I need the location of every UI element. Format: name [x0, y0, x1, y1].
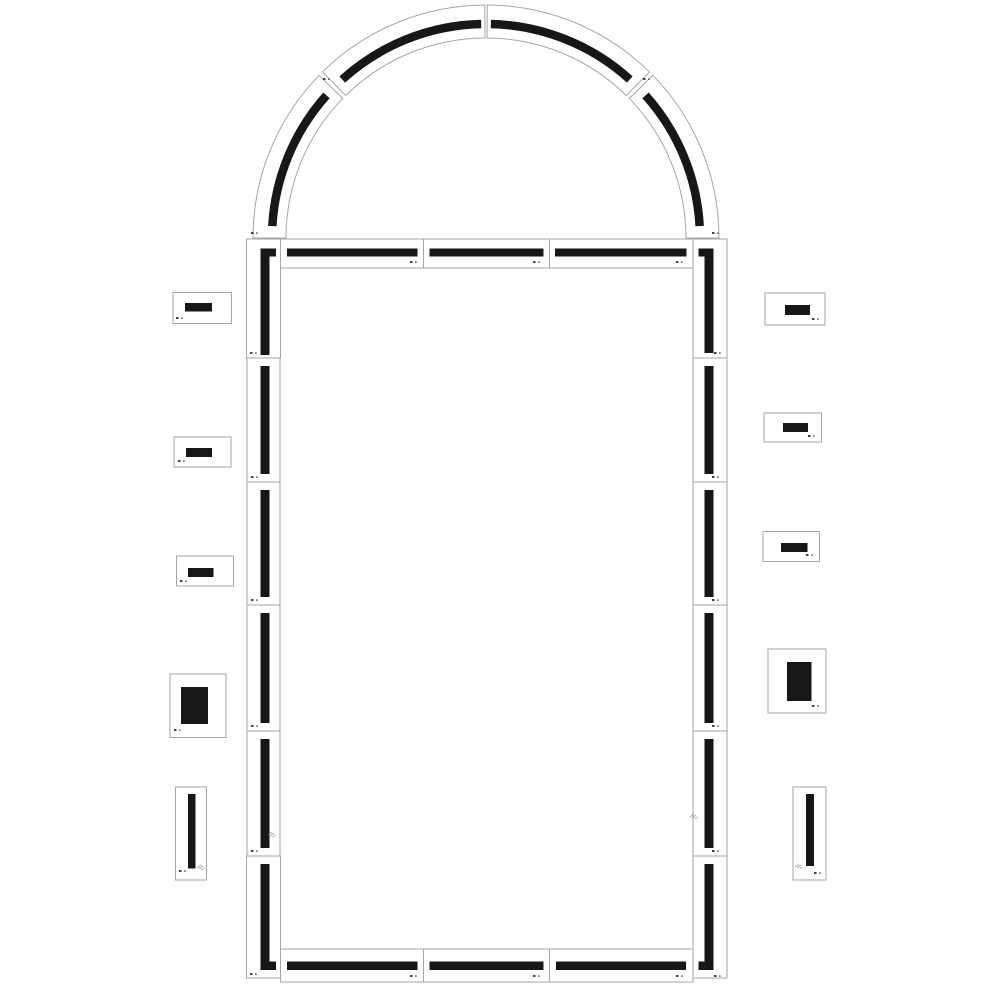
- part-code-dot: [813, 435, 815, 436]
- arch-segment-right-upper-outline: [487, 5, 649, 95]
- corner-top-left-stripe: [261, 249, 277, 257]
- arch-segment-left-lower: [253, 75, 343, 238]
- part-code-dot: [180, 580, 183, 582]
- part-code-dot: [538, 975, 540, 976]
- part-code-dot: [819, 872, 821, 873]
- left-column-2-stripe: [261, 490, 270, 597]
- part-code-dot: [179, 729, 181, 730]
- part-code-dot: [712, 599, 715, 601]
- arch-segment-right-upper: [487, 5, 649, 95]
- part-code-dot: [712, 476, 715, 478]
- part-code-dot: [184, 870, 186, 871]
- top-band-2-stripe: [430, 249, 544, 257]
- corner-bottom-right: [693, 856, 727, 978]
- right-column-1-stripe: [705, 366, 714, 474]
- left-column-3-stripe: [261, 613, 270, 723]
- part-code-dot: [714, 352, 717, 354]
- part-code-dot: [643, 78, 646, 80]
- corner-top-right: [693, 239, 727, 358]
- loose-left-3: [177, 556, 234, 586]
- part-code-dot: [185, 580, 187, 581]
- part-code-dot: [812, 318, 815, 320]
- part-code-dot: [717, 476, 719, 477]
- loose-left-1-stripe: [185, 303, 212, 312]
- part-code-dot: [712, 725, 715, 727]
- loose-right-4-stripe: [787, 662, 812, 701]
- loose-left-4: [170, 674, 226, 738]
- arch-segment-left-upper: [323, 5, 485, 95]
- left-column-1: [247, 358, 280, 482]
- bottom-band-2-stripe: [430, 962, 544, 971]
- part-code-dot: [174, 729, 177, 731]
- corner-top-right-stripe: [699, 249, 714, 257]
- part-code-dot: [181, 317, 183, 318]
- loose-right-3-stripe: [781, 543, 808, 552]
- part-code-dot: [533, 975, 536, 977]
- loose-left-2-stripe: [186, 448, 212, 457]
- part-code-dot: [250, 352, 253, 354]
- part-code-dot: [717, 232, 719, 233]
- loose-right-5: [793, 787, 826, 880]
- bottom-band-1: [281, 949, 424, 982]
- corner-bottom-right-stripe: [705, 864, 714, 970]
- part-code-dot: [178, 460, 181, 462]
- part-code-dot: [410, 261, 413, 263]
- part-code-dot: [255, 973, 257, 974]
- part-code-dot: [251, 599, 254, 601]
- corner-top-left: [247, 239, 281, 358]
- loose-left-5-stripe: [188, 794, 196, 869]
- right-column-4: [693, 731, 727, 856]
- loose-left-4-stripe: [181, 687, 208, 724]
- part-code-dot: [256, 725, 258, 726]
- rectangular-frame-assembly: [247, 239, 728, 982]
- part-code-dot: [817, 318, 819, 319]
- arch-segment-left-upper-outline: [323, 5, 485, 95]
- part-code-dot: [676, 975, 679, 977]
- part-code-dot: [255, 352, 257, 353]
- part-code-dot: [676, 261, 679, 263]
- right-column-2-stripe: [705, 490, 714, 597]
- arch-assembly: [253, 5, 719, 238]
- right-column-3: [693, 605, 727, 731]
- part-code-dot: [681, 261, 683, 262]
- part-code-dot: [717, 599, 719, 600]
- loose-left-2: [174, 437, 231, 467]
- right-column-4-stripe: [705, 739, 714, 848]
- loose-right-2: [764, 413, 822, 442]
- part-code-dot: [176, 317, 179, 319]
- part-code-dot: [251, 476, 254, 478]
- top-band-3: [550, 239, 694, 268]
- part-code-dot: [251, 850, 254, 852]
- part-code-dot: [415, 261, 417, 262]
- bottom-band-3-stripe: [556, 962, 686, 971]
- part-code-dot: [814, 872, 817, 874]
- part-code-dot: [648, 78, 650, 79]
- bottom-band-3: [550, 949, 694, 982]
- bottom-band-2: [424, 949, 550, 982]
- loose-right-2-stripe: [783, 423, 808, 432]
- part-code-dot: [717, 725, 719, 726]
- part-code-dot: [808, 435, 811, 437]
- part-code-dot: [712, 232, 715, 234]
- part-code-dot: [323, 78, 326, 80]
- top-band-1-stripe: [287, 249, 418, 257]
- left-column-3: [247, 605, 280, 731]
- loose-left-5: [176, 787, 207, 880]
- part-code-dot: [179, 870, 182, 872]
- arch-segment-right-lower: [629, 75, 719, 238]
- loose-left-1: [173, 293, 232, 324]
- loose-right-4: [768, 649, 826, 713]
- left-column-2: [247, 482, 280, 605]
- part-code-dot: [251, 232, 254, 234]
- part-code-dot: [817, 705, 819, 706]
- loose-left-3-stripe: [188, 568, 214, 577]
- loose-right-5-stripe: [806, 794, 814, 866]
- part-code-dot: [714, 975, 717, 977]
- part-code-dot: [811, 554, 813, 555]
- part-code-dot: [681, 975, 683, 976]
- part-code-dot: [256, 232, 258, 233]
- part-code-dot: [328, 78, 330, 79]
- arch-segment-right-lower-outline: [629, 75, 719, 238]
- part-code-dot: [712, 850, 715, 852]
- top-band-2: [424, 239, 550, 268]
- part-code-dot: [719, 352, 721, 353]
- right-column-3-stripe: [705, 613, 714, 723]
- part-code-dot: [410, 975, 413, 977]
- right-column-2: [693, 482, 727, 605]
- corner-top-right-stripe: [705, 249, 714, 354]
- arch-segment-left-lower-outline: [253, 75, 343, 238]
- part-code-dot: [719, 975, 721, 976]
- part-code-dot: [256, 476, 258, 477]
- corner-bottom-right-stripe: [699, 962, 714, 971]
- product-diagram-page: [0, 0, 1000, 1000]
- bottom-band-1-stripe: [287, 962, 418, 971]
- part-code-dot: [183, 460, 185, 461]
- part-code-dot: [806, 554, 809, 556]
- top-band-3-stripe: [555, 249, 687, 257]
- loose-right-3: [763, 532, 820, 562]
- right-column-1: [693, 358, 727, 482]
- top-band-1: [281, 239, 424, 268]
- part-code-dot: [256, 850, 258, 851]
- left-column-4: [247, 731, 280, 856]
- corner-bottom-left-stripe: [261, 962, 277, 971]
- left-column-1-stripe: [261, 366, 270, 474]
- corner-top-left-stripe: [261, 249, 270, 356]
- corner-bottom-left-stripe: [261, 864, 270, 970]
- arch-frame-kit-diagram: [0, 0, 1000, 1000]
- corner-bottom-left: [247, 856, 281, 978]
- left-column-4-stripe: [261, 739, 270, 848]
- part-code-dot: [538, 261, 540, 262]
- part-code-dot: [415, 975, 417, 976]
- part-code-dot: [812, 705, 815, 707]
- part-code-dot: [533, 261, 536, 263]
- part-code-dot: [717, 850, 719, 851]
- loose-right-1-stripe: [785, 305, 810, 315]
- part-code-dot: [250, 973, 253, 975]
- loose-right-1: [765, 293, 825, 325]
- part-code-dot: [256, 599, 258, 600]
- part-code-dot: [251, 725, 254, 727]
